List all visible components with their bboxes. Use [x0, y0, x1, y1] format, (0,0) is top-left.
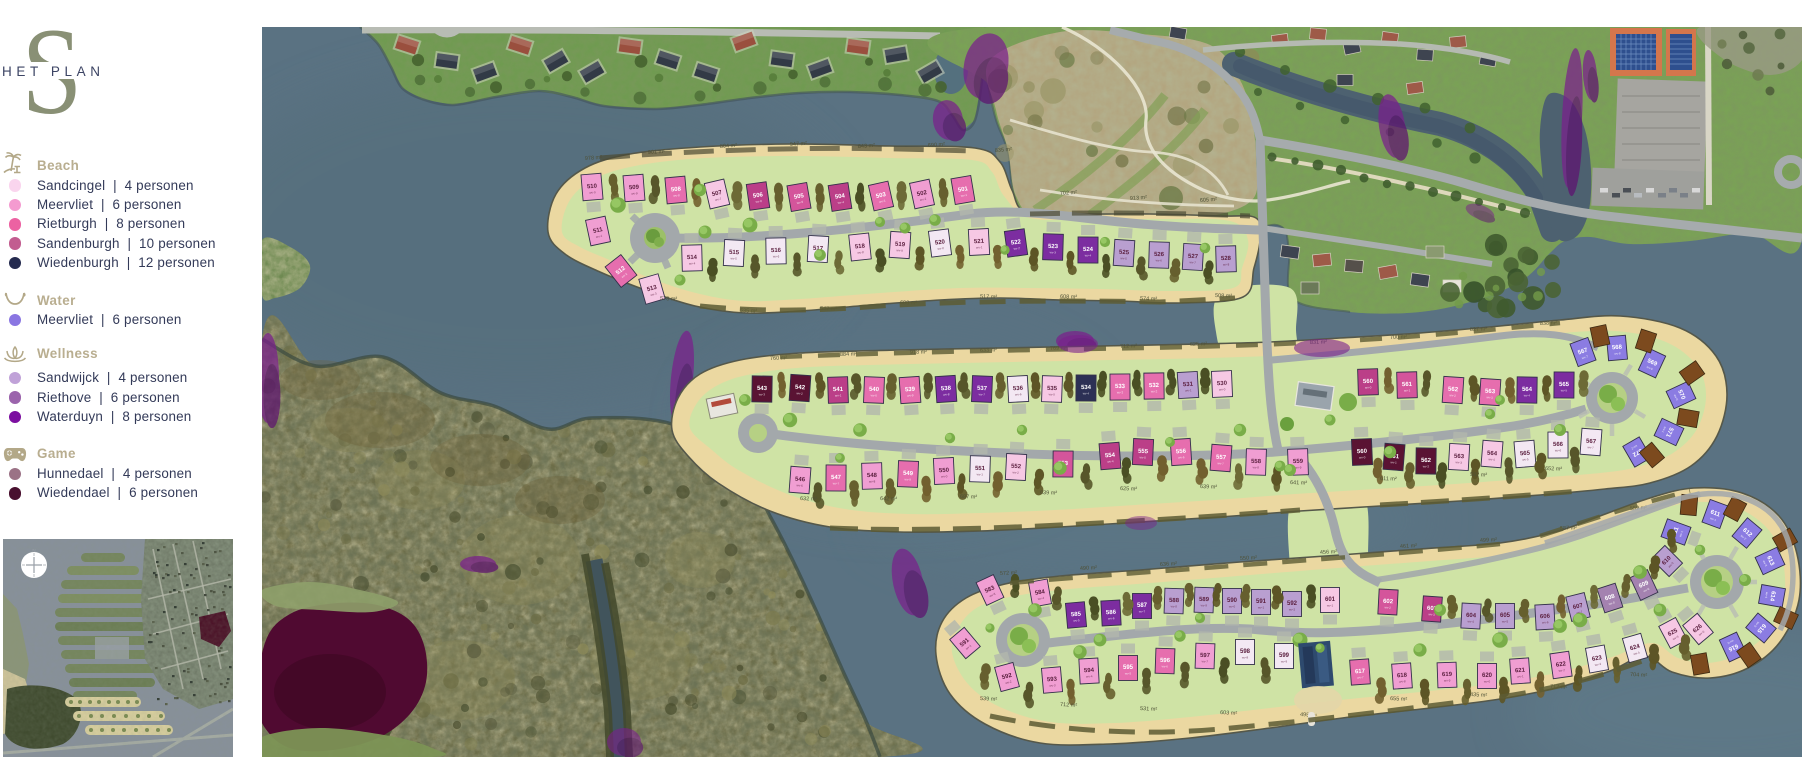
svg-text:wv-3: wv-3	[1455, 460, 1462, 464]
svg-text:wv-2: wv-2	[1151, 389, 1158, 393]
svg-text:wv-3: wv-3	[1486, 395, 1493, 399]
svg-text:wv-0: wv-0	[1359, 455, 1366, 459]
svg-text:wv-9: wv-9	[1444, 678, 1451, 682]
svg-text:534: 534	[1081, 385, 1092, 391]
svg-text:wv-6: wv-6	[796, 483, 803, 487]
svg-text:617: 617	[1355, 669, 1366, 676]
svg-text:490 m²: 490 m²	[1080, 565, 1098, 572]
svg-text:wv-7: wv-7	[1189, 260, 1196, 264]
svg-text:642 m²: 642 m²	[880, 496, 897, 503]
svg-text:HET PLAN: HET PLAN	[2, 64, 105, 79]
svg-text:602: 602	[1383, 599, 1394, 606]
svg-text:510: 510	[587, 184, 598, 191]
svg-text:wv-7: wv-7	[1587, 445, 1594, 449]
svg-text:wv-4: wv-4	[1086, 674, 1093, 678]
svg-text:wv-0: wv-0	[871, 393, 878, 397]
svg-text:530: 530	[1217, 381, 1228, 387]
svg-text:wv-6: wv-6	[1178, 455, 1185, 459]
svg-text:wv-3: wv-3	[1428, 612, 1435, 616]
svg-text:592: 592	[1287, 601, 1298, 607]
svg-text:552: 552	[1011, 464, 1022, 471]
svg-text:wv-4: wv-4	[1467, 619, 1474, 623]
svg-text:wv-2: wv-2	[1384, 605, 1391, 609]
svg-text:wv-5: wv-5	[1125, 672, 1132, 676]
svg-text:884 m²: 884 m²	[840, 351, 857, 358]
svg-text:593: 593	[1047, 677, 1058, 684]
svg-text:588: 588	[1169, 598, 1180, 604]
svg-text:wv-8: wv-8	[1242, 656, 1249, 660]
svg-text:wv-1: wv-1	[1258, 606, 1265, 610]
svg-text:606: 606	[1540, 614, 1551, 621]
svg-text:550: 550	[939, 468, 950, 475]
svg-text:605 m²: 605 m²	[1200, 197, 1218, 204]
svg-text:461 m²: 461 m²	[1400, 543, 1418, 550]
svg-text:702 m²: 702 m²	[1060, 190, 1078, 197]
svg-text:835 m²: 835 m²	[995, 147, 1013, 154]
svg-text:687 m²: 687 m²	[960, 494, 977, 501]
svg-text:566: 566	[1553, 442, 1564, 448]
svg-text:wv-9: wv-9	[1281, 660, 1288, 664]
svg-text:wv-2: wv-2	[1289, 608, 1296, 612]
svg-text:560: 560	[1363, 379, 1374, 385]
svg-text:wv-3: wv-3	[759, 392, 766, 396]
svg-text:wv-6: wv-6	[773, 254, 780, 258]
svg-text:596: 596	[1160, 658, 1171, 664]
svg-text:wv-7: wv-7	[1139, 610, 1146, 614]
svg-text:wv-5: wv-5	[1522, 457, 1529, 462]
svg-text:978 m²: 978 m²	[585, 155, 603, 162]
svg-text:535: 535	[1047, 386, 1058, 392]
svg-text:578 m²: 578 m²	[660, 296, 677, 303]
svg-text:wv-9: wv-9	[631, 191, 638, 196]
svg-text:wv-1: wv-1	[1327, 604, 1334, 608]
svg-text:wv-4: wv-4	[1524, 393, 1531, 397]
svg-text:568: 568	[1612, 345, 1623, 352]
svg-text:wv-8: wv-8	[1614, 351, 1621, 356]
svg-text:wv-7: wv-7	[833, 481, 840, 485]
svg-text:589: 589	[1199, 597, 1210, 603]
svg-text:704 m²: 704 m²	[1630, 672, 1648, 679]
svg-text:wv-5: wv-5	[1073, 618, 1080, 623]
svg-text:wv-7: wv-7	[979, 392, 986, 396]
svg-text:652 m²: 652 m²	[1545, 466, 1562, 473]
svg-text:604: 604	[1466, 613, 1477, 620]
svg-text:wv-0: wv-0	[1484, 680, 1491, 684]
svg-text:wv-3: wv-3	[1049, 683, 1056, 688]
svg-text:541: 541	[833, 387, 844, 393]
svg-text:wv-8: wv-8	[869, 479, 876, 483]
svg-text:586: 586	[1106, 610, 1117, 617]
svg-text:539: 539	[905, 387, 916, 394]
svg-text:712 m²: 712 m²	[1060, 702, 1078, 709]
svg-text:531 m²: 531 m²	[1140, 706, 1158, 713]
svg-text:618: 618	[1397, 673, 1408, 680]
svg-text:619: 619	[1442, 672, 1453, 678]
svg-text:636 m²: 636 m²	[1160, 561, 1178, 568]
svg-text:wv-7: wv-7	[1202, 659, 1209, 663]
svg-text:562: 562	[1421, 458, 1432, 464]
svg-text:536: 536	[1013, 386, 1024, 393]
svg-text:wv-5: wv-5	[1049, 392, 1056, 396]
svg-text:655 m²: 655 m²	[1390, 696, 1408, 703]
svg-text:wv-1: wv-1	[1404, 388, 1411, 392]
svg-text:wv-8: wv-8	[1253, 465, 1260, 469]
svg-text:549: 549	[903, 471, 914, 477]
svg-text:585: 585	[1071, 612, 1082, 619]
svg-text:611 m²: 611 m²	[1380, 476, 1397, 483]
svg-text:539 m²: 539 m²	[980, 696, 998, 703]
svg-text:wv-0: wv-0	[1219, 387, 1226, 391]
svg-text:641 m²: 641 m²	[1290, 480, 1307, 487]
svg-text:554: 554	[1105, 453, 1116, 460]
svg-text:558: 558	[1251, 459, 1262, 465]
svg-text:591: 591	[1256, 599, 1267, 605]
svg-text:597: 597	[1200, 653, 1211, 659]
svg-text:wv-0: wv-0	[941, 474, 948, 478]
svg-text:wv-7: wv-7	[1357, 675, 1364, 679]
svg-text:518: 518	[855, 243, 866, 250]
svg-text:516: 516	[771, 248, 782, 254]
svg-text:515: 515	[729, 250, 740, 257]
svg-text:wv-9: wv-9	[1295, 465, 1302, 469]
svg-text:wv-8: wv-8	[673, 193, 680, 198]
svg-text:514: 514	[687, 255, 698, 261]
svg-text:wv-2: wv-2	[1423, 464, 1430, 468]
svg-text:594: 594	[1084, 668, 1095, 675]
svg-text:524: 524	[1083, 247, 1094, 253]
svg-text:wv-6: wv-6	[1162, 664, 1169, 668]
svg-text:564: 564	[1522, 387, 1533, 393]
svg-text:wv-1: wv-1	[1517, 674, 1524, 678]
svg-text:548: 548	[867, 473, 878, 479]
svg-text:533: 533	[1115, 384, 1126, 390]
svg-text:435 m²: 435 m²	[1470, 692, 1488, 699]
svg-text:561: 561	[1402, 382, 1413, 388]
svg-text:wv-6: wv-6	[1156, 258, 1163, 262]
svg-text:wv-5: wv-5	[1502, 620, 1509, 624]
svg-text:543: 543	[757, 386, 768, 392]
svg-text:528: 528	[1221, 256, 1232, 262]
svg-text:wv-2: wv-2	[796, 391, 803, 395]
svg-text:wv-6: wv-6	[1015, 392, 1022, 396]
svg-text:wv-8: wv-8	[1223, 262, 1230, 266]
svg-text:wv-4: wv-4	[1083, 391, 1090, 395]
svg-text:wv-8: wv-8	[1171, 604, 1178, 608]
svg-text:wv-3: wv-3	[1050, 250, 1057, 254]
svg-text:621: 621	[1515, 668, 1526, 675]
svg-text:560: 560	[1357, 449, 1368, 455]
svg-text:wv-6: wv-6	[1542, 620, 1549, 624]
svg-text:wv-0: wv-0	[1365, 385, 1372, 389]
svg-text:605: 605	[1500, 613, 1511, 619]
svg-text:599: 599	[1279, 653, 1290, 659]
svg-text:wv-4: wv-4	[1107, 459, 1114, 463]
svg-text:531: 531	[1183, 382, 1194, 389]
svg-text:wv-1: wv-1	[1185, 388, 1192, 392]
svg-text:550 m²: 550 m²	[1240, 555, 1258, 562]
svg-text:625 m²: 625 m²	[1120, 486, 1137, 493]
svg-text:wv-9: wv-9	[1201, 603, 1208, 607]
svg-text:639 m²: 639 m²	[1200, 484, 1217, 491]
svg-text:532: 532	[1149, 383, 1160, 389]
svg-text:wv-2: wv-2	[1012, 470, 1019, 474]
svg-text:wv-1: wv-1	[835, 393, 842, 397]
svg-text:wv-1: wv-1	[976, 245, 983, 249]
svg-text:456 m²: 456 m²	[1320, 549, 1338, 556]
svg-text:wv-0: wv-0	[589, 190, 596, 195]
svg-text:565: 565	[1559, 382, 1570, 388]
svg-text:wv-8: wv-8	[857, 250, 864, 255]
svg-text:509: 509	[629, 185, 640, 192]
svg-text:537: 537	[977, 386, 988, 392]
svg-text:wv-5: wv-5	[1120, 256, 1127, 260]
svg-text:526: 526	[1154, 252, 1165, 258]
svg-text:521: 521	[974, 239, 985, 246]
svg-text:wv-2: wv-2	[1449, 393, 1456, 397]
svg-text:wv-9: wv-9	[907, 393, 914, 397]
svg-text:wv-8: wv-8	[1399, 679, 1406, 683]
svg-text:wv-9: wv-9	[896, 248, 903, 252]
svg-text:538: 538	[941, 386, 952, 393]
svg-text:wv-9: wv-9	[905, 477, 912, 481]
svg-text:556: 556	[1176, 449, 1187, 456]
svg-text:wv-4: wv-4	[1085, 253, 1092, 257]
svg-text:wv-5: wv-5	[1139, 455, 1146, 459]
svg-text:523: 523	[1048, 244, 1059, 250]
svg-text:590: 590	[1227, 598, 1238, 604]
svg-text:wv-4: wv-4	[1488, 457, 1495, 462]
svg-text:547: 547	[831, 475, 842, 481]
svg-text:wv-5: wv-5	[730, 256, 737, 260]
svg-text:wv-6: wv-6	[1108, 616, 1115, 620]
svg-text:913 m²: 913 m²	[1130, 195, 1148, 202]
svg-text:632 m²: 632 m²	[800, 496, 817, 503]
svg-text:639 m²: 639 m²	[1040, 490, 1057, 497]
svg-text:wv-4: wv-4	[689, 261, 696, 265]
svg-text:wv-8: wv-8	[943, 392, 950, 396]
svg-text:wv-0: wv-0	[1229, 605, 1236, 609]
svg-text:595: 595	[1123, 665, 1134, 671]
svg-text:620: 620	[1482, 673, 1493, 679]
svg-text:551: 551	[975, 466, 986, 472]
svg-text:wv-1: wv-1	[977, 472, 984, 476]
svg-text:587: 587	[1137, 603, 1148, 609]
svg-text:540: 540	[869, 387, 880, 393]
svg-text:565: 565	[1520, 451, 1531, 458]
svg-text:598: 598	[1240, 649, 1251, 655]
svg-text:wv-0: wv-0	[937, 246, 944, 251]
svg-text:wv-5: wv-5	[1561, 388, 1568, 392]
svg-text:508: 508	[671, 187, 682, 194]
svg-text:wv-6: wv-6	[1555, 448, 1562, 452]
svg-text:572 m²: 572 m²	[1000, 570, 1018, 577]
svg-text:wv-1: wv-1	[1390, 460, 1397, 465]
svg-text:603 m²: 603 m²	[1220, 710, 1238, 717]
svg-text:N: N	[32, 548, 35, 553]
svg-text:wv-3: wv-3	[1117, 390, 1124, 394]
svg-text:601: 601	[1325, 597, 1336, 603]
svg-text:559: 559	[1293, 459, 1304, 465]
svg-text:wv-7: wv-7	[1217, 461, 1224, 465]
svg-text:582 m²: 582 m²	[1470, 472, 1487, 479]
svg-text:555: 555	[1138, 449, 1149, 456]
